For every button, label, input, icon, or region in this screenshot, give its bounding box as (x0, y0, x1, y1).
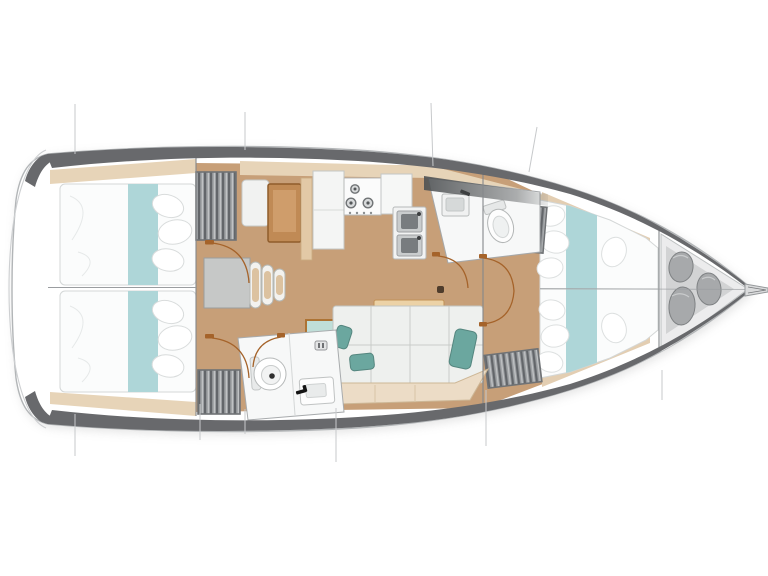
stove (344, 178, 381, 215)
sink (397, 211, 422, 232)
companionway-steps (250, 262, 285, 308)
vent-icon (315, 341, 327, 350)
sink (397, 235, 422, 256)
faucet-icon (417, 212, 421, 216)
locker-forward-starboard (484, 349, 542, 388)
settee (332, 306, 488, 404)
companionway-platform (204, 258, 250, 308)
mast-step-icon (437, 286, 444, 293)
yacht-floor-plan (0, 0, 768, 576)
galley-sink-unit (393, 207, 426, 259)
locker-aft-head (198, 370, 240, 414)
aft-cabin-port (60, 184, 196, 285)
locker-nav (196, 172, 236, 240)
toilet (250, 357, 286, 391)
faucet-icon (417, 236, 421, 240)
floor-plan-canvas (0, 0, 768, 576)
bowsprit (745, 284, 768, 296)
aft-head (238, 330, 344, 420)
nav-cabinet-trim (301, 178, 312, 260)
aft-cabin-starboard (60, 291, 196, 392)
nav-seat (242, 180, 269, 226)
